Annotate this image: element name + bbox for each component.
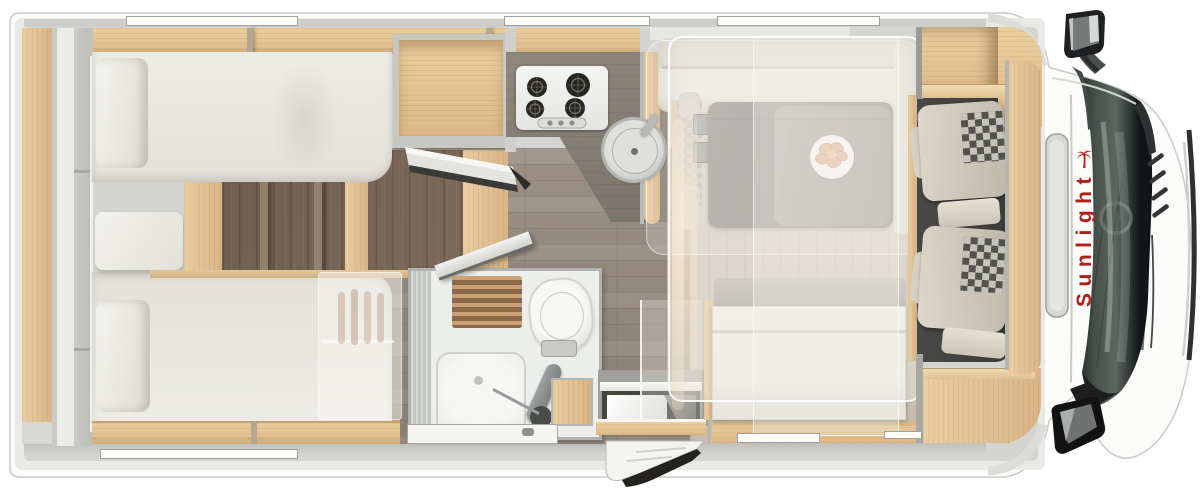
svg-text:Sunlight: Sunlight [1073,171,1096,307]
